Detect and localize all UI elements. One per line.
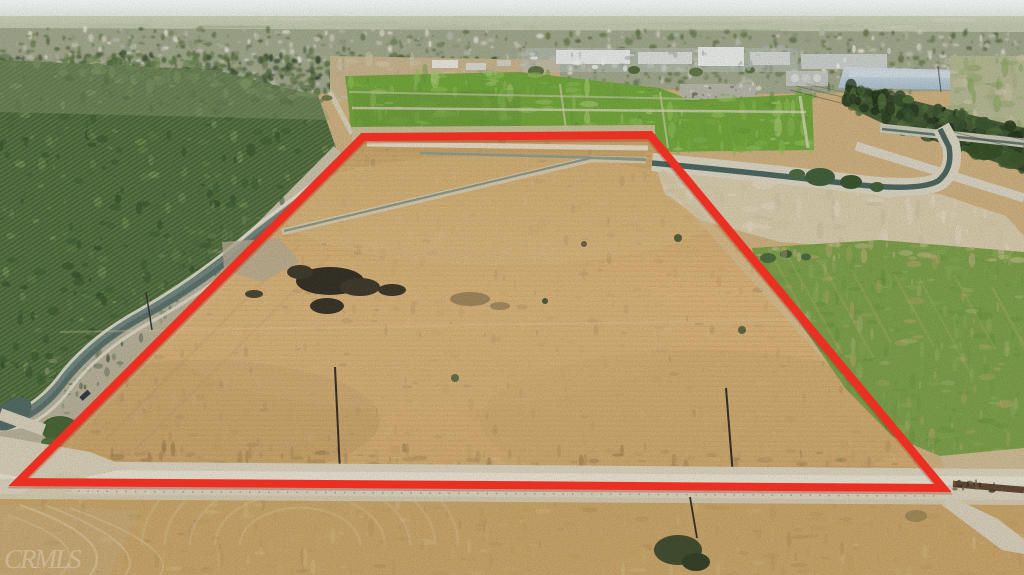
svg-text:CRMLS: CRMLS (4, 544, 82, 574)
